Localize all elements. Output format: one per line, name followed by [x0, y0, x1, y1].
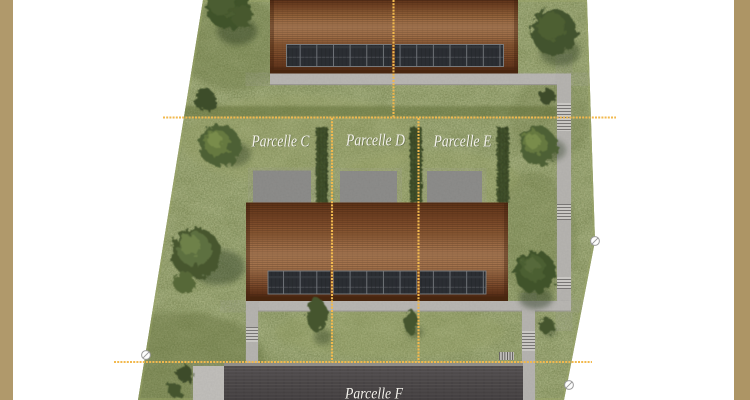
svg-text:Parcelle E: Parcelle E	[433, 132, 492, 151]
svg-text:Parcelle C: Parcelle C	[251, 132, 311, 151]
svg-text:Parcelle F: Parcelle F	[344, 385, 403, 400]
svg-text:Parcelle D: Parcelle D	[345, 131, 405, 150]
